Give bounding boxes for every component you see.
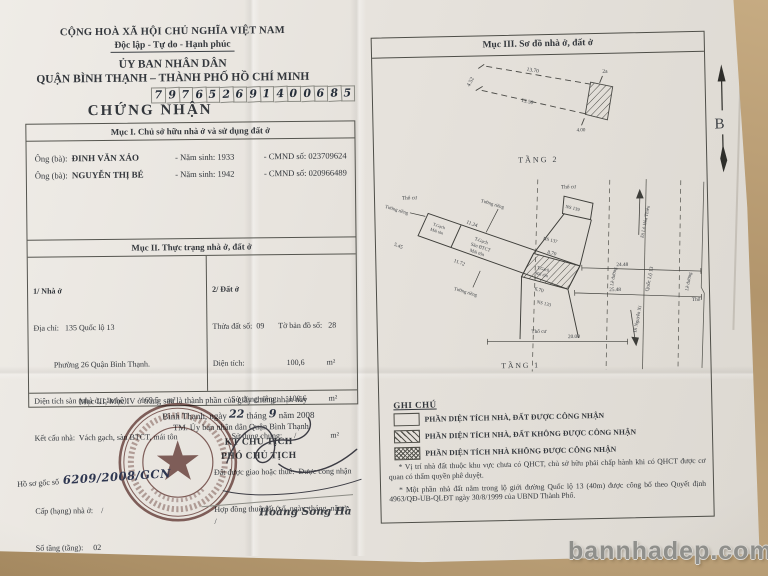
serial-digit: 0 [287,86,301,102]
national-title: CỘNG HOÀ XÃ HỘI CHỦ NGHĨA VIỆT NAM [4,24,340,39]
footnote: * Một phần nhà đất nằm trong lộ giới đườ… [389,478,706,504]
f1-thocu-topleft: Thổ cư [402,194,417,201]
owner-id: - CMND số: 020966489 [264,164,347,182]
legend-swatch-not-recognized-land [394,429,420,443]
legend-label: PHẦN DIỆN TÍCH NHÀ, ĐẤT KHÔNG ĐƯỢC CÔNG … [425,427,636,440]
diagram-box: Mục III. Sơ đồ nhà ở, đất ở [371,31,715,524]
f1-ns-top: NS 139 [565,205,581,213]
f1-dim-left: 5.45 [393,242,404,251]
serial-digit: 7 [151,87,166,103]
legend-label: PHẦN DIỆN TÍCH NHÀ KHÔNG ĐƯỢC CÔNG NHẬN [425,444,616,457]
section2-body: 1/ Nhà ở Địa chỉ: 135 Quốc lộ 13 Phường … [28,254,357,392]
f1-thocu-topmid: Thổ cư [561,183,576,190]
land-info-line: 2/ Đất ở [212,283,351,297]
dossier-label: Hồ sơ gốc số [17,477,59,489]
paper-sheet: CỘNG HOÀ XÃ HỘI CHỦ NGHĨA VIỆT NAM Độc l… [0,0,768,576]
floor2-plan: 4.52 13.70 13.50 2a 4.00 TẦNG 2 [378,56,700,181]
floor2-dim-end: 4.00 [577,128,586,133]
f1-ns-bot: NS 133 [536,300,552,308]
south-road-arrowhead [631,337,639,347]
land-info-line: Thửa đất số: 09 Tờ bản đồ số: 28 [212,319,351,333]
legend: GHI CHÚ PHẦN DIỆN TÍCH NHÀ, ĐẤT ĐƯỢC CÔN… [393,394,700,461]
serial-digit: 6 [314,86,328,102]
owner-name: ĐINH VĂN XẢO [72,149,176,167]
scanned-certificate-photo: CỘNG HOÀ XÃ HỘI CHỦ NGHĨA VIỆT NAM Độc l… [0,0,768,576]
footnotes: * Vị trí nhà đất thuộc khu vực chưa có Q… [389,456,707,508]
diagram-page: Mục III. Sơ đồ nhà ở, đất ở [358,0,768,564]
land-info-line: Diện tích: 100,6 m² [213,356,352,370]
house-info-line: Phường 26 Quận Bình Thạnh. [34,358,202,372]
signature-stroke [218,401,364,498]
serial-digit: 7 [179,87,193,103]
f1-road-leduong-left: Lề đường [610,267,618,287]
issuing-org-district: QUẬN BÌNH THẠNH – THÀNH PHỐ HỒ CHÍ MINH [5,70,341,86]
f1-tho-right: Thổ [692,296,701,303]
floor2-dim-bottom: 13.50 [520,98,534,107]
owner-name: NGUYỄN THỊ BÉ [72,166,176,184]
serial-digit: 9 [246,86,260,103]
north-road-arrowhead [636,189,644,199]
f1-tuongrieng-3: Tường riêng [453,287,478,299]
legend-swatch-recognized [393,412,419,426]
f1-dim-top: 11.24 [465,219,478,229]
house-info-line: Số tầng (tầng): 02 [36,541,204,555]
floor2-label: TẦNG 2 [518,154,558,165]
house-info-line: 1/ Nhà ở [33,284,201,298]
f1-tuongrieng-1: Tường riêng [384,205,409,217]
legend-label: PHẦN DIỆN TÍCH NHÀ, ĐẤT ĐƯỢC CÔNG NHẬN [425,410,605,423]
floor2-tag: 2a [602,69,608,75]
house-info-line: Địa chỉ: 135 Quốc lộ 13 [33,321,201,335]
f1-dim-bottom: 20.00 [568,334,580,340]
compass-letter: B [714,116,724,132]
serial-digit: 9 [165,87,179,104]
signer-name: Hoàng Song Hà [235,505,375,518]
certificate-page: CỘNG HOÀ XÃ HỘI CHỦ NGHĨA VIỆT NAM Độc l… [4,0,366,552]
house-info-column: 1/ Nhà ở Địa chỉ: 135 Quốc lộ 13 Phường … [28,256,207,393]
serial-digit: 8 [327,85,341,102]
f1-dim-right2: 25.48 [609,287,621,293]
f1-thocu-bottom: Thổ cư [531,328,546,335]
serial-digit: 5 [341,85,355,101]
owner-birth: - Năm sinh: 1933 [175,148,264,166]
owner-id: - CMND số: 023709624 [264,147,347,165]
certificate-form-table: Mục I. Chủ sở hữu nhà ở và sử dụng đất ở… [25,120,358,407]
national-motto: Độc lập - Tự do - Hạnh phúc [4,38,340,54]
f1-road-dinguyenxi: Đi Nguyễn Xí [632,305,643,333]
f1-dim-right1: 24.48 [616,262,628,268]
legend-swatch-not-recognized-house [394,446,420,460]
watermark-text: bannhadep.com [568,537,768,566]
serial-digit: 2 [219,86,233,103]
owner-label: Ông (bà): [35,150,72,167]
north-arrow-icon: B [711,64,733,176]
certificate-title: CHỨNG NHẬN [40,101,260,120]
floor2-dim-left: 4.52 [466,76,476,88]
serial-digit: 6 [233,86,247,102]
issuing-org: ỦY BAN NHÂN DÂN [5,56,341,72]
f1-dim-hatch-bottom: 6.70 [534,286,545,294]
f1-road-dilohoathieu: Đi Lò Hỏa Thiêu [641,205,652,239]
serial-digit: 1 [260,86,274,102]
owner-row: Ông (bà): NGUYỄN THỊ BÉ - Năm sinh: 1942… [35,164,347,184]
f1-dim-bottom-edge: 11.72 [453,258,466,268]
serial-digit: 4 [273,86,287,103]
owner-birth: - Năm sinh: 1942 [175,165,264,183]
diagram-header: Mục III. Sơ đồ nhà ở, đất ở [372,32,704,59]
f1-dim-hatch-top: 8.70 [546,250,557,258]
serial-digit: 6 [192,87,206,104]
serial-digit: 0 [300,85,314,102]
land-info-column: 2/ Đất ở Thửa đất số: 09 Tờ bản đồ số: 2… [206,254,357,391]
land-info-line [215,551,354,565]
serial-digit: 5 [206,87,220,103]
f1-tuongrieng-2: Tường riêng [480,199,505,211]
section1-owners: Ông (bà): ĐINH VĂN XẢO - Năm sinh: 1933 … [26,138,355,239]
owner-label: Ông (bà): [35,167,72,184]
floor1-label: TẦNG 1 [501,359,540,370]
floor1-plan: Thổ cư Thổ cư Thổ cư Thổ Tường riêng Tườ… [377,174,711,383]
f1-ns-mid: NS 137 [542,237,558,245]
f1-road-leduong-right: Lề đường [685,271,693,291]
